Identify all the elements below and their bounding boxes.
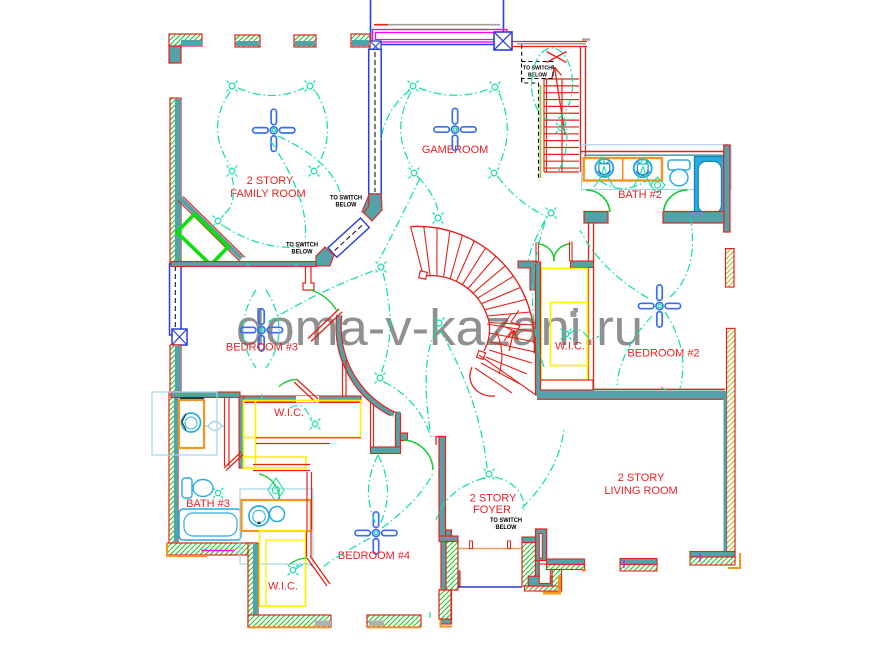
- svg-text:BATH #2: BATH #2: [618, 189, 662, 201]
- svg-text:TO SWITCH: TO SWITCH: [523, 66, 552, 72]
- svg-text:BELOW: BELOW: [496, 525, 517, 531]
- svg-text:FAMILY ROOM: FAMILY ROOM: [230, 188, 305, 200]
- svg-text:BEDROOM #4: BEDROOM #4: [338, 550, 410, 562]
- svg-text:FOYER: FOYER: [473, 504, 511, 516]
- svg-text:BELOW: BELOW: [292, 250, 313, 256]
- svg-text:BELOW: BELOW: [336, 203, 357, 209]
- svg-text:2 STORY: 2 STORY: [470, 493, 517, 505]
- svg-text:W.I.C.: W.I.C.: [555, 341, 585, 353]
- svg-text:BELOW: BELOW: [528, 73, 548, 79]
- svg-text:2 STORY: 2 STORY: [618, 472, 665, 484]
- svg-text:W.I.C.: W.I.C.: [274, 407, 304, 419]
- svg-text:2 STORY: 2 STORY: [247, 175, 294, 187]
- svg-text:W.I.C.: W.I.C.: [268, 581, 298, 593]
- svg-text:TO SWITCH: TO SWITCH: [490, 518, 522, 524]
- svg-text:BEDROOM #3: BEDROOM #3: [226, 342, 298, 354]
- svg-text:BEDROOM #2: BEDROOM #2: [627, 348, 699, 360]
- svg-text:TO SWITCH: TO SWITCH: [286, 243, 318, 249]
- svg-text:TO SWITCH: TO SWITCH: [330, 196, 362, 202]
- svg-text:LIVING ROOM: LIVING ROOM: [604, 485, 677, 497]
